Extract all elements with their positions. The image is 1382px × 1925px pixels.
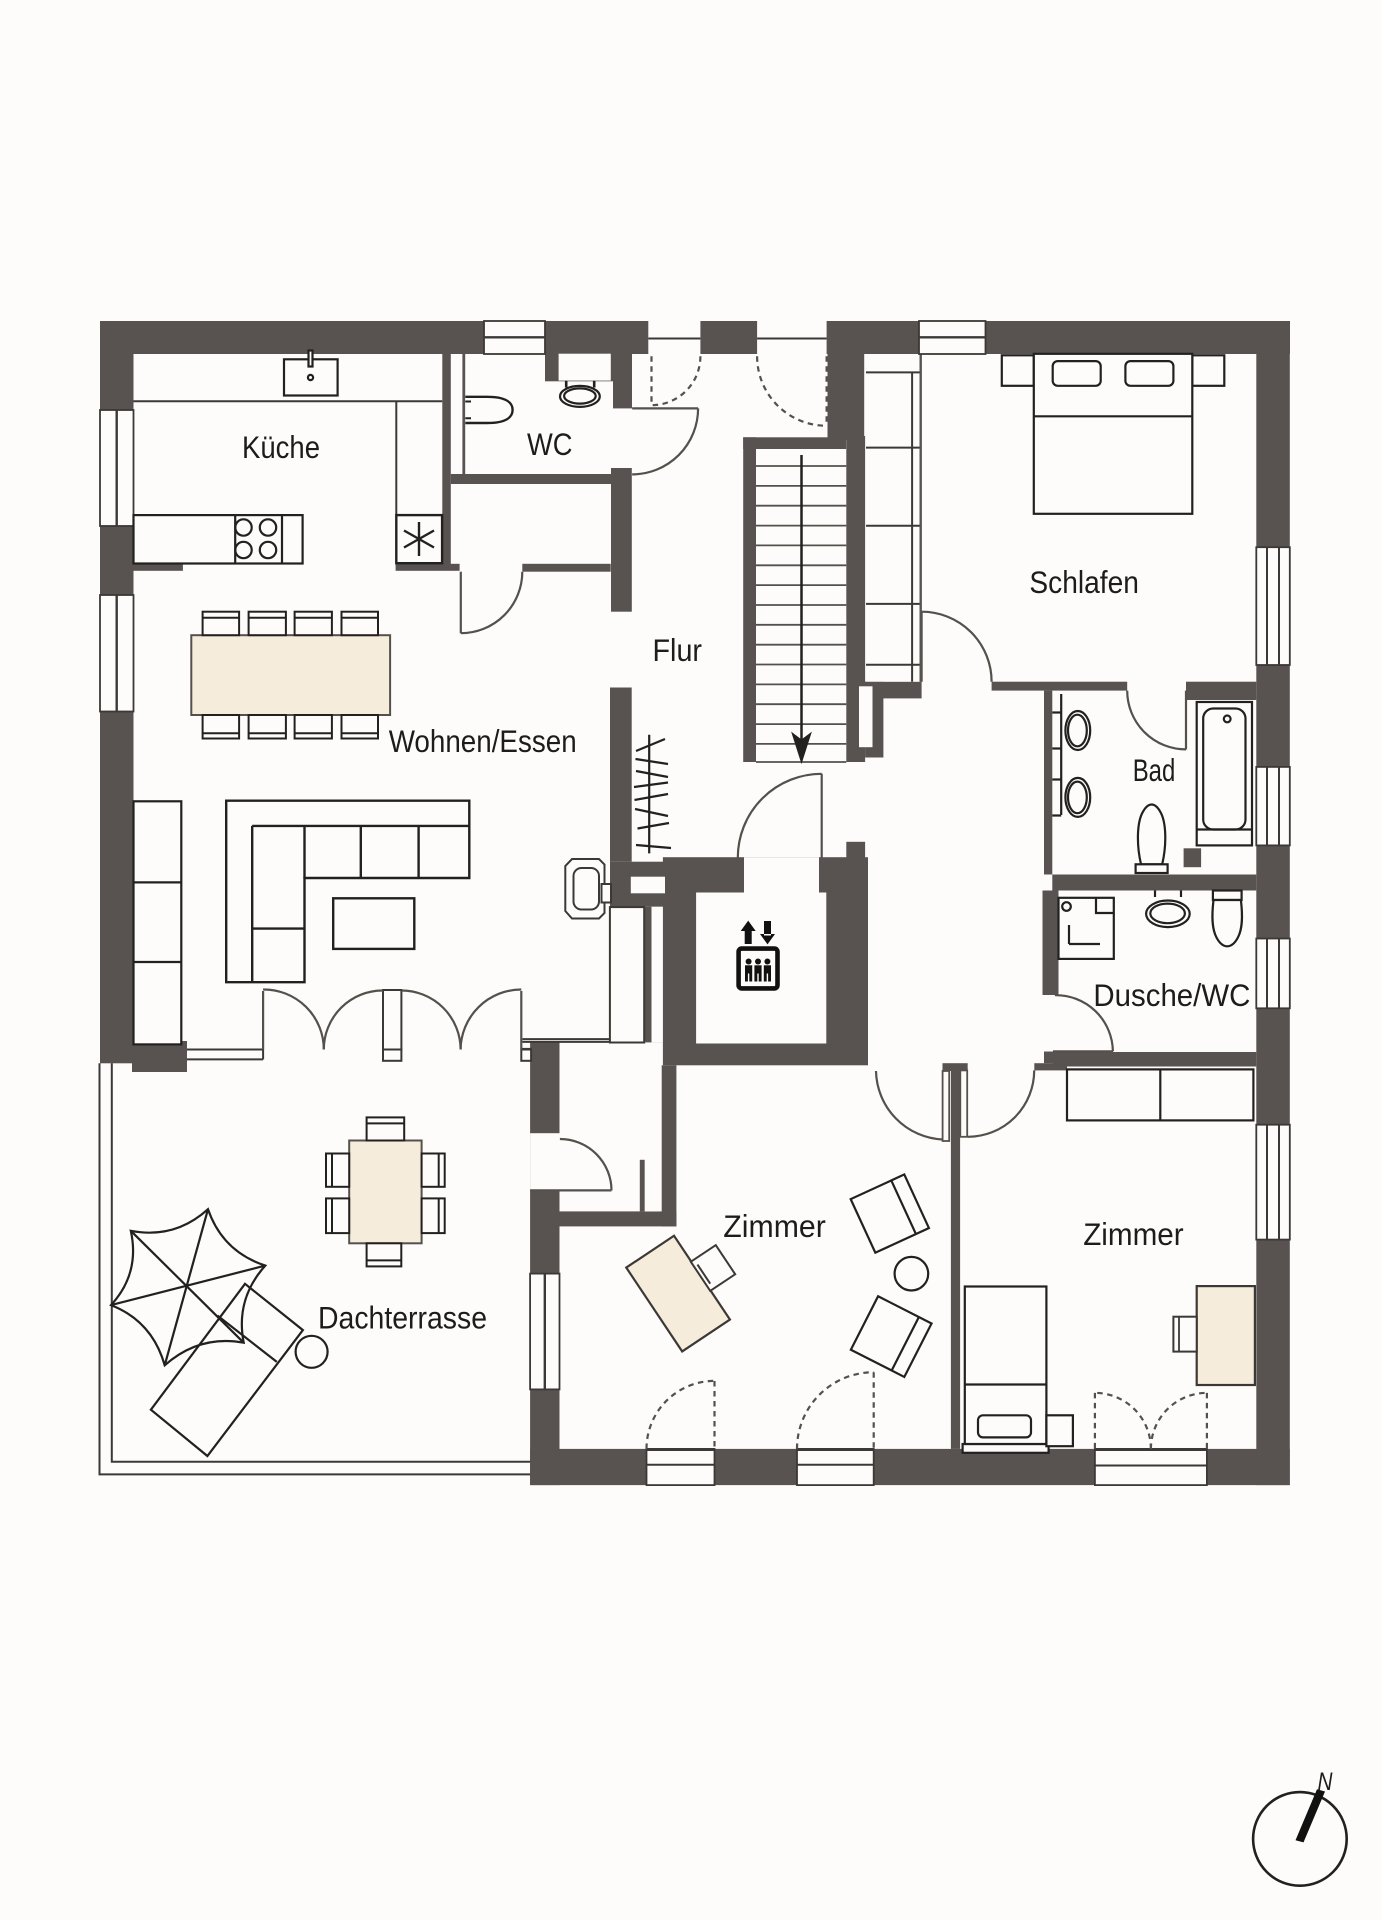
svg-text:Dachterrasse: Dachterrasse xyxy=(318,1300,487,1336)
svg-text:Dusche/WC: Dusche/WC xyxy=(1093,977,1250,1013)
svg-text:Schlafen: Schlafen xyxy=(1029,564,1139,600)
svg-text:Flur: Flur xyxy=(653,632,703,668)
svg-text:WC: WC xyxy=(527,426,573,462)
svg-text:Zimmer: Zimmer xyxy=(723,1208,826,1244)
svg-text:Bad: Bad xyxy=(1133,752,1176,788)
svg-text:Küche: Küche xyxy=(242,429,320,465)
svg-text:Zimmer: Zimmer xyxy=(1083,1216,1184,1252)
svg-text:N: N xyxy=(1318,1768,1334,1796)
svg-text:Wohnen/Essen: Wohnen/Essen xyxy=(389,723,577,759)
